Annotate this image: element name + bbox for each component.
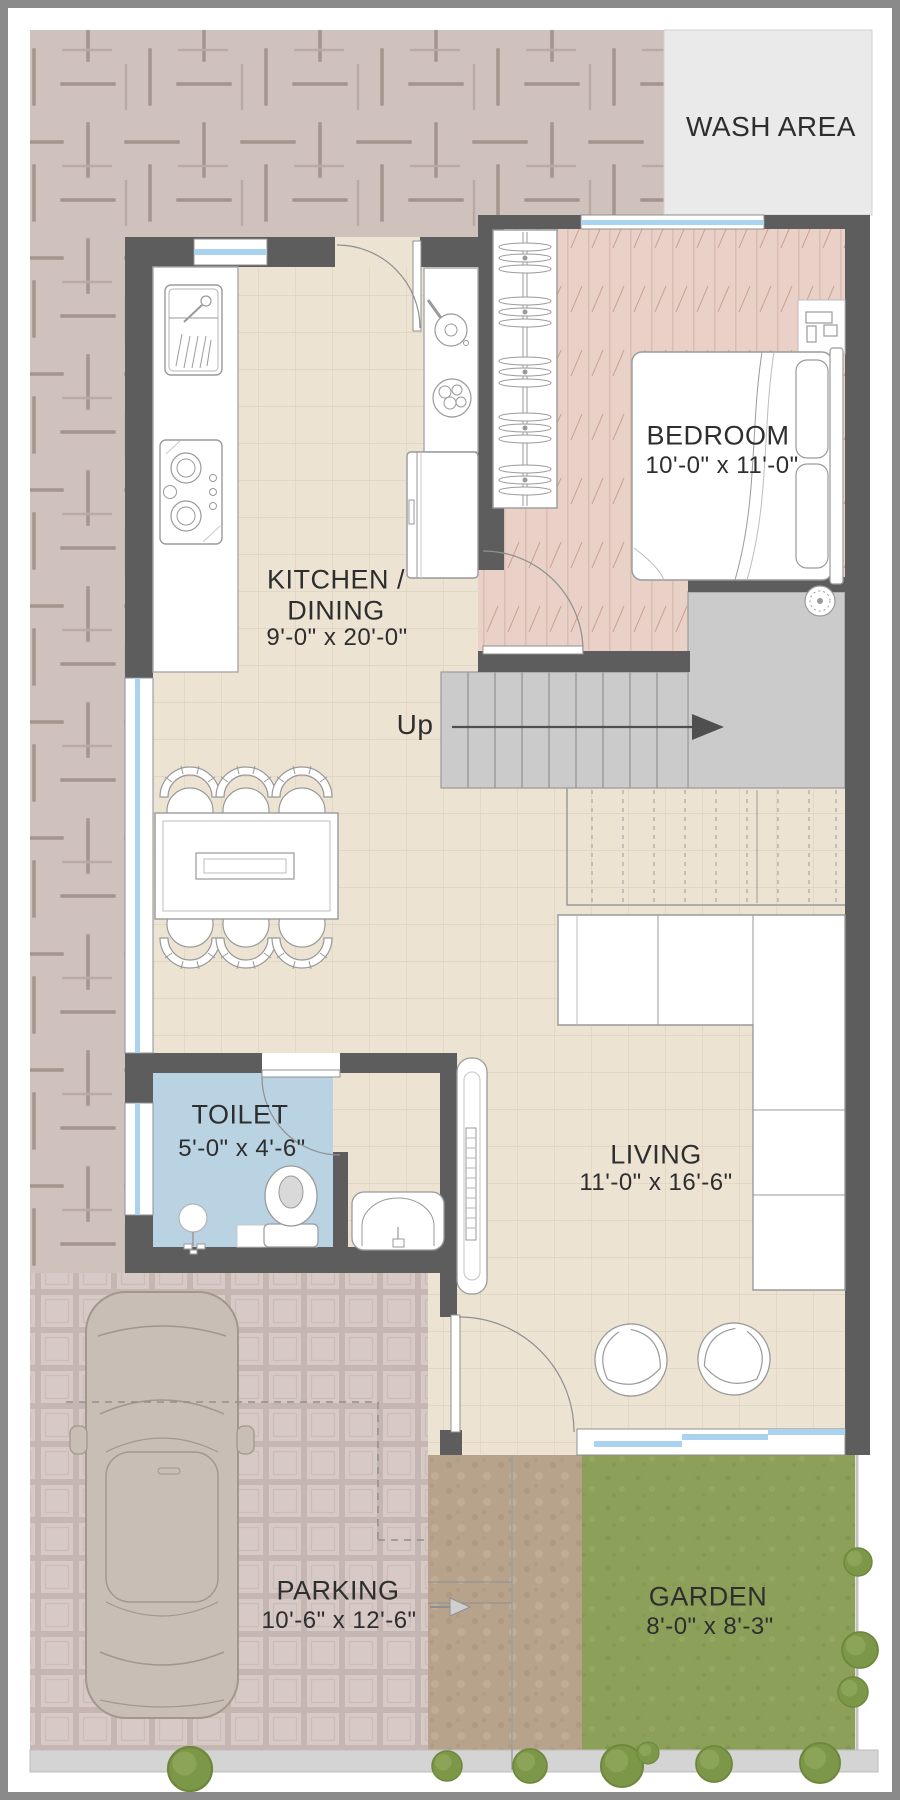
kitchen-counter-2: [424, 268, 478, 452]
stairs-up-label: Up: [397, 711, 434, 739]
pillow: [796, 464, 828, 568]
tv-unit: [457, 1058, 487, 1294]
toilet-label: TOILET: [191, 1102, 288, 1129]
bedroom-window: [581, 215, 764, 229]
wash-area-label: WASH AREA: [686, 113, 856, 141]
living-dims: 11'-0" x 16'-6": [579, 1171, 732, 1195]
refrigerator: [407, 452, 478, 578]
car: [70, 1292, 254, 1718]
living-label: LIVING: [610, 1142, 702, 1169]
parking-label: PARKING: [276, 1578, 399, 1605]
living-sliding-window: [577, 1429, 845, 1455]
pillow: [796, 360, 828, 458]
wardrobe: [493, 230, 557, 508]
parking-dims: 10'-6" x 12'-6": [261, 1609, 416, 1633]
kitchen-sink: [165, 285, 222, 375]
kitchen-label-1: KITCHEN /: [267, 567, 405, 594]
dresser: [798, 300, 845, 354]
toilet-dims: 5'-0" x 4'-6": [178, 1137, 305, 1161]
floor-plan-canvas: [0, 0, 900, 1800]
fruit-bowl: [433, 379, 471, 417]
stool: [805, 586, 835, 616]
kitchen-window: [194, 239, 267, 265]
bedroom-dims: 10'-0" x 11'-0": [645, 454, 798, 478]
dining-table: [155, 813, 338, 919]
kitchen-dims: 9'-0" x 20'-0": [266, 626, 407, 650]
wash-basin: [352, 1192, 444, 1250]
kitchen-stove: [160, 440, 222, 544]
dining-window: [125, 678, 153, 1053]
garden-dims: 8'-0" x 8'-3": [646, 1615, 773, 1639]
kitchen-label-2: DINING: [287, 598, 385, 625]
bedroom-label: BEDROOM: [646, 423, 789, 450]
garden-label: GARDEN: [649, 1584, 768, 1611]
toilet-window: [125, 1103, 153, 1215]
floor-plan-page: WASH AREA BEDROOM 10'-0" x 11'-0" KITCHE…: [0, 0, 900, 1800]
